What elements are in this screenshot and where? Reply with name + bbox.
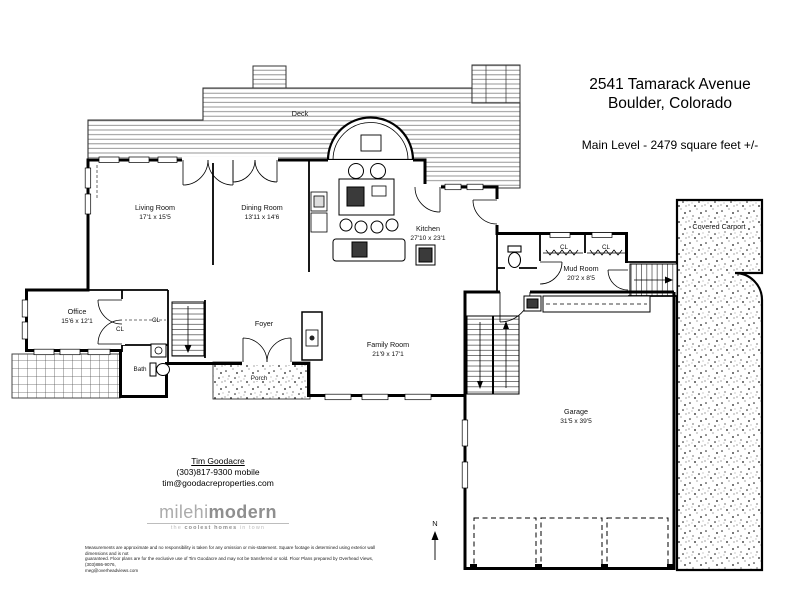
carport-label: Covered Carport bbox=[692, 222, 745, 231]
chimney-right bbox=[472, 65, 520, 103]
living-room-label: Living Room bbox=[135, 203, 175, 212]
covered-carport-area bbox=[677, 200, 762, 570]
mud-room-dims: 20'2 x 8'5 bbox=[567, 275, 595, 282]
logo-brand-bold: modern bbox=[209, 502, 277, 522]
stairs-to-basement bbox=[172, 302, 204, 356]
stool-icon bbox=[386, 219, 398, 231]
garage-workbench bbox=[524, 296, 650, 312]
patio-grid-surface bbox=[12, 354, 120, 398]
deck-label: Deck bbox=[292, 109, 309, 118]
dining-room-dims: 13'11 x 14'6 bbox=[245, 214, 280, 221]
disclaimer-line3: meg@overheadviews.com bbox=[85, 568, 385, 574]
fireplace-icon bbox=[310, 336, 315, 341]
tagline-pre: the bbox=[171, 525, 185, 531]
north-label: N bbox=[432, 519, 437, 528]
closet-label: CL bbox=[602, 244, 611, 251]
north-arrow-icon: N bbox=[432, 519, 439, 560]
office-dims: 15'6 x 12'1 bbox=[61, 318, 93, 325]
bath-label: Bath bbox=[134, 366, 147, 373]
mud-room-label: Mud Room bbox=[563, 264, 598, 273]
powder-toilet-icon bbox=[508, 246, 521, 268]
stool-icon bbox=[371, 221, 383, 233]
carport-surface bbox=[677, 200, 762, 570]
milehimodern-logo: milehimodern the coolest homes in town bbox=[108, 503, 328, 531]
porch-label: Porch bbox=[251, 375, 268, 382]
disclaimer-block: Measurements are approximate and no resp… bbox=[85, 545, 385, 573]
address-line2: Boulder, Colorado bbox=[540, 95, 792, 114]
cooktop-icon bbox=[352, 242, 367, 257]
plan-header: 2541 Tamarack Avenue Boulder, Colorado M… bbox=[540, 76, 792, 152]
logo-brand-light: milehi bbox=[159, 502, 208, 522]
stool-icon bbox=[371, 164, 386, 179]
stairs-in-garage bbox=[467, 316, 519, 394]
dining-room-label: Dining Room bbox=[241, 203, 283, 212]
toilet-icon bbox=[157, 364, 170, 376]
disclaimer-line1: Measurements are approximate and no resp… bbox=[85, 545, 385, 556]
closet-label: CL bbox=[560, 244, 569, 251]
kitchen-label: Kitchen bbox=[416, 224, 440, 233]
fireplace-chase bbox=[302, 312, 322, 360]
office-label: Office bbox=[68, 307, 87, 316]
stove-icon bbox=[347, 187, 364, 206]
stool-icon bbox=[340, 219, 352, 231]
address-line1: 2541 Tamarack Avenue bbox=[540, 76, 792, 95]
foyer-label: Foyer bbox=[255, 319, 274, 328]
tagline-post: in town bbox=[237, 525, 265, 531]
agent-email: tim@goodacreproperties.com bbox=[118, 478, 318, 489]
kitchen-dims: 27'10 x 23'1 bbox=[410, 235, 445, 242]
logo-divider bbox=[147, 523, 289, 524]
disclaimer-line2: guaranteed. Floor plans are for the excl… bbox=[85, 556, 385, 567]
level-label: Main Level - 2479 square feet +/- bbox=[540, 138, 792, 152]
garage-dims: 31'5 x 39'5 bbox=[560, 418, 592, 425]
stool-icon bbox=[355, 221, 367, 233]
garage-label: Garage bbox=[564, 407, 588, 416]
contact-block: Tim Goodacre (303)817-9300 mobile tim@go… bbox=[118, 456, 318, 489]
living-room-dims: 17'1 x 15'5 bbox=[139, 214, 171, 221]
family-room-dims: 21'9 x 17'1 bbox=[372, 351, 404, 358]
closet-label: CL bbox=[152, 317, 161, 324]
closet-label: CL bbox=[116, 326, 125, 333]
tagline-bold: coolest homes bbox=[185, 525, 238, 531]
agent-name: Tim Goodacre bbox=[118, 456, 318, 467]
logo-tagline: the coolest homes in town bbox=[108, 525, 328, 531]
floorplan-page: N Living Room 17'1 x 15'5 Dining Room 13… bbox=[0, 0, 792, 612]
stool-icon bbox=[349, 164, 364, 179]
chimney-left bbox=[253, 66, 286, 88]
sink-icon bbox=[372, 186, 386, 196]
bay-table bbox=[361, 135, 381, 151]
family-room-label: Family Room bbox=[367, 340, 409, 349]
agent-phone: (303)817-9300 mobile bbox=[118, 467, 318, 478]
